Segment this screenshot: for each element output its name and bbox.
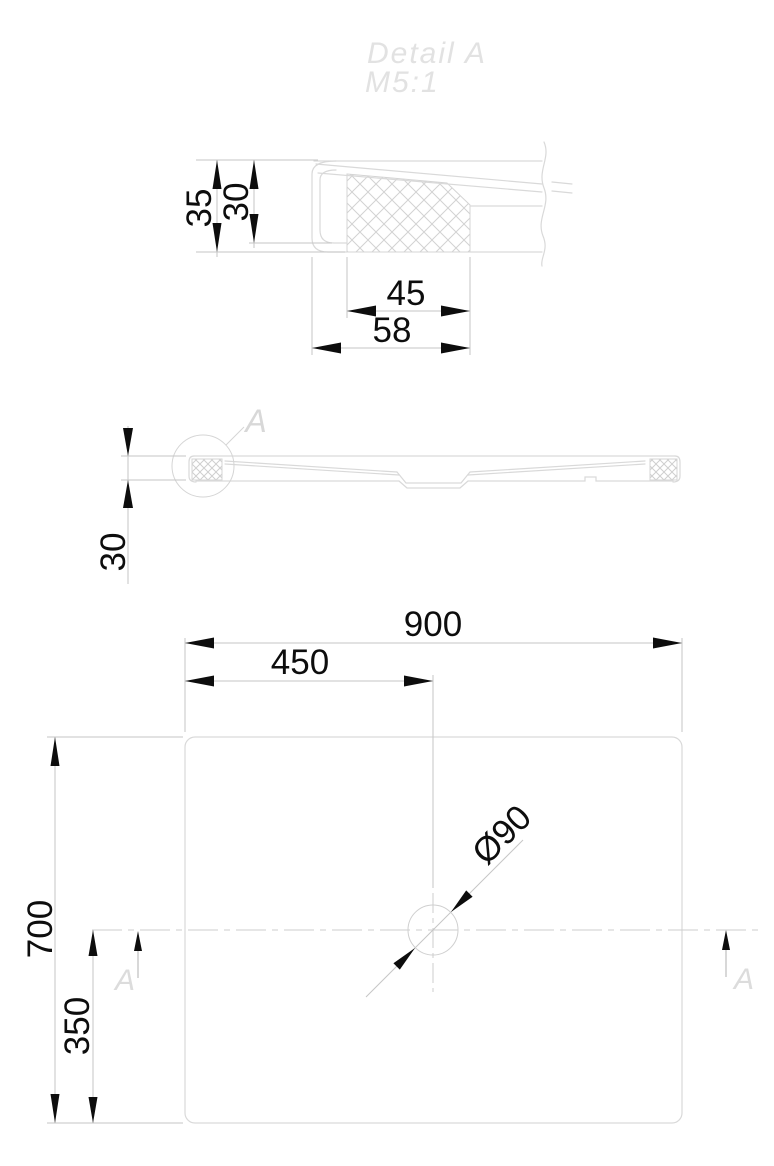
plan-dim-700-label: 700 (21, 900, 60, 958)
side-profile (189, 456, 680, 488)
side-dim-30: 30 (94, 426, 186, 584)
section-marker-right-label: A (732, 963, 754, 996)
section-marker-left: A (113, 931, 142, 997)
plan-dim-350: 350 (58, 930, 98, 1123)
plan-dim-450: 450 (185, 643, 433, 687)
plan-dim-350-label: 350 (58, 997, 97, 1055)
detail-scale-label: M5:1 (365, 66, 440, 99)
side-left-cap-hatch (192, 459, 222, 480)
plan-dim-900-label: 900 (404, 605, 462, 644)
detail-callout-leader (226, 427, 244, 445)
detail-dim-45-label: 45 (387, 274, 426, 313)
side-right-cap-hatch (650, 459, 677, 480)
detail-dim-30: 30 (217, 160, 332, 248)
side-section-view: A 30 (94, 403, 680, 584)
drawing-title: Detail A M5:1 (365, 37, 487, 99)
section-marker-left-label: A (113, 964, 135, 997)
drain-dim-label: Ø90 (465, 798, 539, 872)
shower-tray-drawing: Detail A M5:1 (0, 0, 774, 1166)
detail-dim-35-label: 35 (180, 189, 219, 228)
detail-dim-30-label: 30 (217, 183, 256, 222)
plan-view: Ø90 900 450 700 (21, 605, 758, 1123)
section-marker-right: A (722, 930, 754, 996)
drain-dim: Ø90 (366, 798, 539, 997)
detail-dim-58-label: 58 (373, 311, 412, 350)
plan-dim-450-label: 450 (271, 643, 329, 682)
detail-a-view: 35 30 45 58 (180, 142, 572, 355)
detail-callout: A (172, 403, 267, 497)
side-dim-30-label: 30 (94, 533, 133, 572)
detail-callout-label: A (243, 403, 266, 439)
technical-drawing-canvas: Detail A M5:1 (0, 0, 774, 1166)
detail-foam-core-hatch (347, 174, 470, 252)
